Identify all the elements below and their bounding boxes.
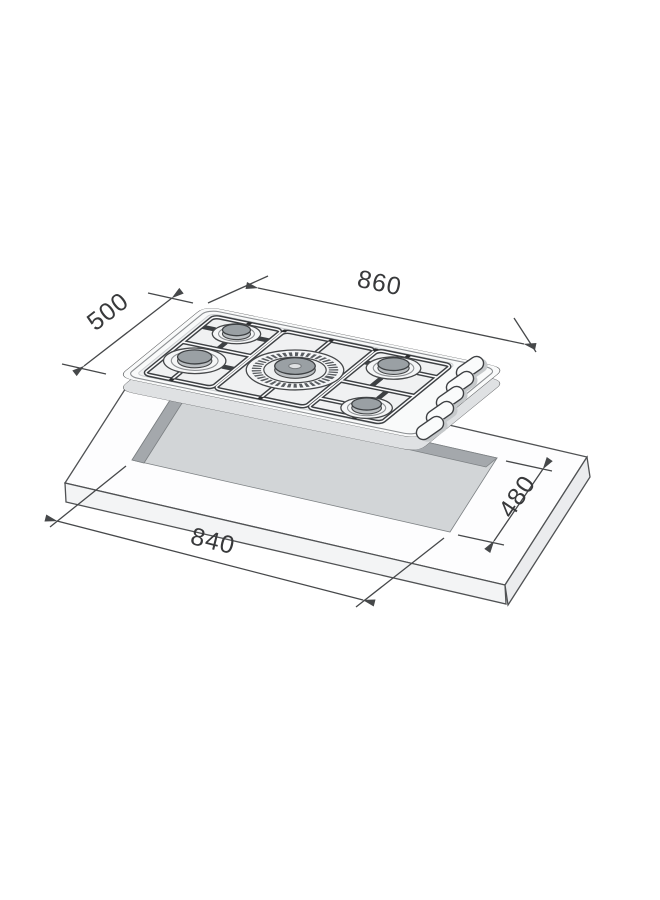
hob-width-label: 860	[355, 265, 404, 301]
hob-depth-label: 500	[82, 287, 134, 337]
installation-diagram: 860 500 840 480	[0, 0, 660, 900]
hob-installation-drawing: 860 500 840 480	[0, 0, 660, 900]
